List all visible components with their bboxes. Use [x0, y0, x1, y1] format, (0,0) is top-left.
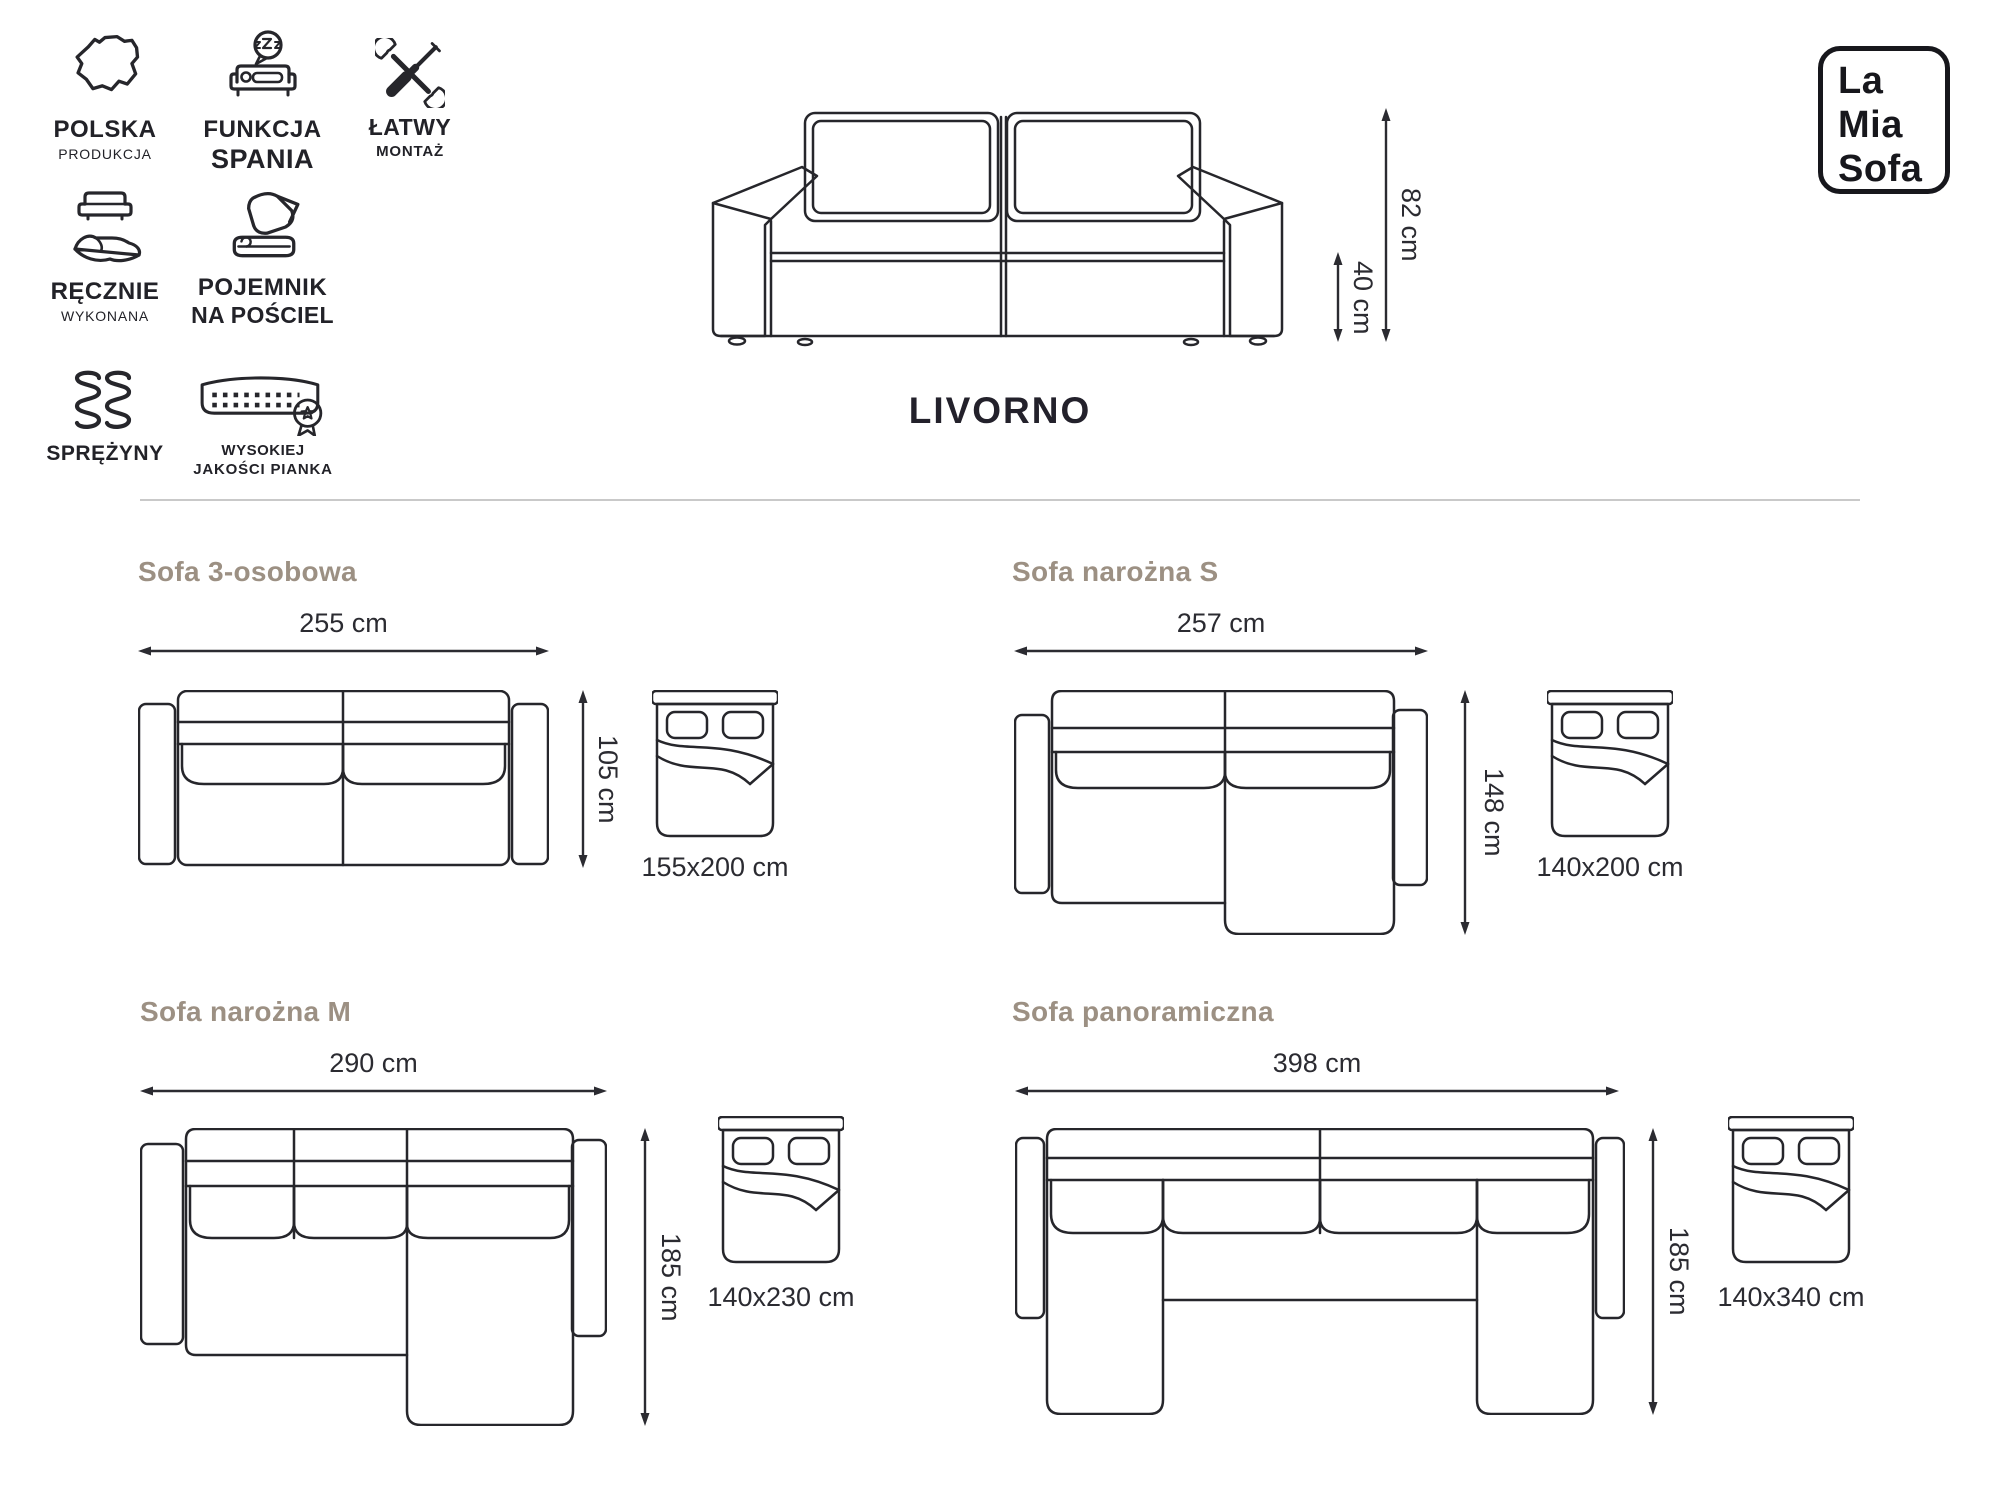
tools-icon: [345, 34, 475, 108]
depth-arrow: [1645, 1128, 1661, 1415]
feature-label: RĘCZNIE: [20, 278, 190, 306]
bed-size-label: 155x200 cm: [605, 852, 825, 883]
feature-sublabel: NA POŚCIEL: [180, 302, 345, 329]
feature-label: SPRĘŻYNY: [20, 442, 190, 466]
poland-map-icon: [20, 30, 190, 110]
width-arrow: [138, 644, 549, 658]
bed-icon: [652, 690, 778, 840]
width-arrow: [140, 1084, 607, 1098]
feature-funkcja-spania: FUNKCJA SPANIA: [180, 30, 345, 175]
feature-sublabel: PRODUKCJA: [20, 146, 190, 162]
feature-sublabel: WYKONANA: [20, 308, 190, 324]
springs-icon: [20, 362, 190, 436]
depth-arrow: [1457, 690, 1473, 935]
total-height-label: 82 cm: [1395, 160, 1426, 290]
variant-depth-label: 105 cm: [592, 714, 623, 844]
handmade-icon: [20, 186, 190, 272]
variant-width-label: 290 cm: [140, 1048, 607, 1079]
sleeping-function-icon: [180, 30, 345, 110]
feature-label: POLSKA: [20, 116, 190, 144]
bed-size-label: 140x230 cm: [671, 1282, 891, 1313]
total-height-arrow: [1378, 108, 1394, 342]
sofa-top-view-drawing: [138, 690, 549, 868]
feature-polska-produkcja: POLSKA PRODUKCJA: [20, 30, 190, 162]
variant-width-label: 255 cm: [138, 608, 549, 639]
spec-sheet: POLSKA PRODUKCJA FUNKCJA SPANIA: [0, 0, 2000, 1500]
variant-title: Sofa narożna S: [1012, 556, 1218, 588]
section-divider: [140, 499, 1860, 501]
sofa-front-view-drawing: [705, 105, 1290, 350]
foam-mattress-badge-icon: [168, 366, 358, 436]
bed-size-label: 140x340 cm: [1681, 1282, 1901, 1313]
variant-title: Sofa narożna M: [140, 996, 351, 1028]
variant-title: Sofa panoramiczna: [1012, 996, 1274, 1028]
bed-icon: [718, 1116, 844, 1266]
variant-width-label: 398 cm: [1015, 1048, 1619, 1079]
feature-label: POJEMNIK: [180, 274, 345, 302]
feature-recznie-wykonana: RĘCZNIE WYKONANA: [20, 186, 190, 324]
variant-depth-label: 185 cm: [655, 1212, 686, 1342]
sofa-top-view-drawing: [1015, 1128, 1625, 1415]
bed-size-label: 140x200 cm: [1500, 852, 1720, 883]
width-arrow: [1015, 1084, 1619, 1098]
bedding-container-icon: [180, 180, 345, 268]
depth-arrow: [637, 1128, 653, 1426]
sofa-top-view-drawing: [140, 1128, 607, 1426]
feature-sublabel: MONTAŻ: [345, 143, 475, 160]
depth-arrow: [575, 690, 591, 868]
sofa-top-view-drawing: [1014, 690, 1428, 935]
feature-pojemnik-na-posciel: POJEMNIK NA POŚCIEL: [180, 180, 345, 329]
seat-height-arrow: [1330, 252, 1346, 342]
variant-title: Sofa 3-osobowa: [138, 556, 357, 588]
brand-logo: La Mia Sofa: [1818, 46, 1950, 194]
feature-label: ŁATWY: [345, 114, 475, 141]
variant-depth-label: 185 cm: [1663, 1206, 1694, 1336]
seat-height-label: 40 cm: [1347, 240, 1378, 356]
brand-logo-line1: La: [1838, 59, 1945, 103]
feature-label: WYSOKIEJ: [168, 442, 358, 459]
product-title: LIVORNO: [850, 390, 1150, 432]
variant-width-label: 257 cm: [1014, 608, 1428, 639]
feature-sublabel: JAKOŚCI PIANKA: [168, 461, 358, 478]
brand-logo-line3: Sofa: [1838, 147, 1945, 191]
feature-sprezyny: SPRĘŻYNY: [20, 362, 190, 468]
feature-wysokiej-jakosci-pianka: WYSOKIEJ JAKOŚCI PIANKA: [168, 366, 358, 478]
brand-logo-line2: Mia: [1838, 103, 1945, 147]
bed-icon: [1728, 1116, 1854, 1266]
bed-icon: [1547, 690, 1673, 840]
feature-sublabel: SPANIA: [180, 144, 345, 175]
feature-latwy-montaz: ŁATWY MONTAŻ: [345, 34, 475, 160]
feature-label: FUNKCJA: [180, 116, 345, 144]
width-arrow: [1014, 644, 1428, 658]
